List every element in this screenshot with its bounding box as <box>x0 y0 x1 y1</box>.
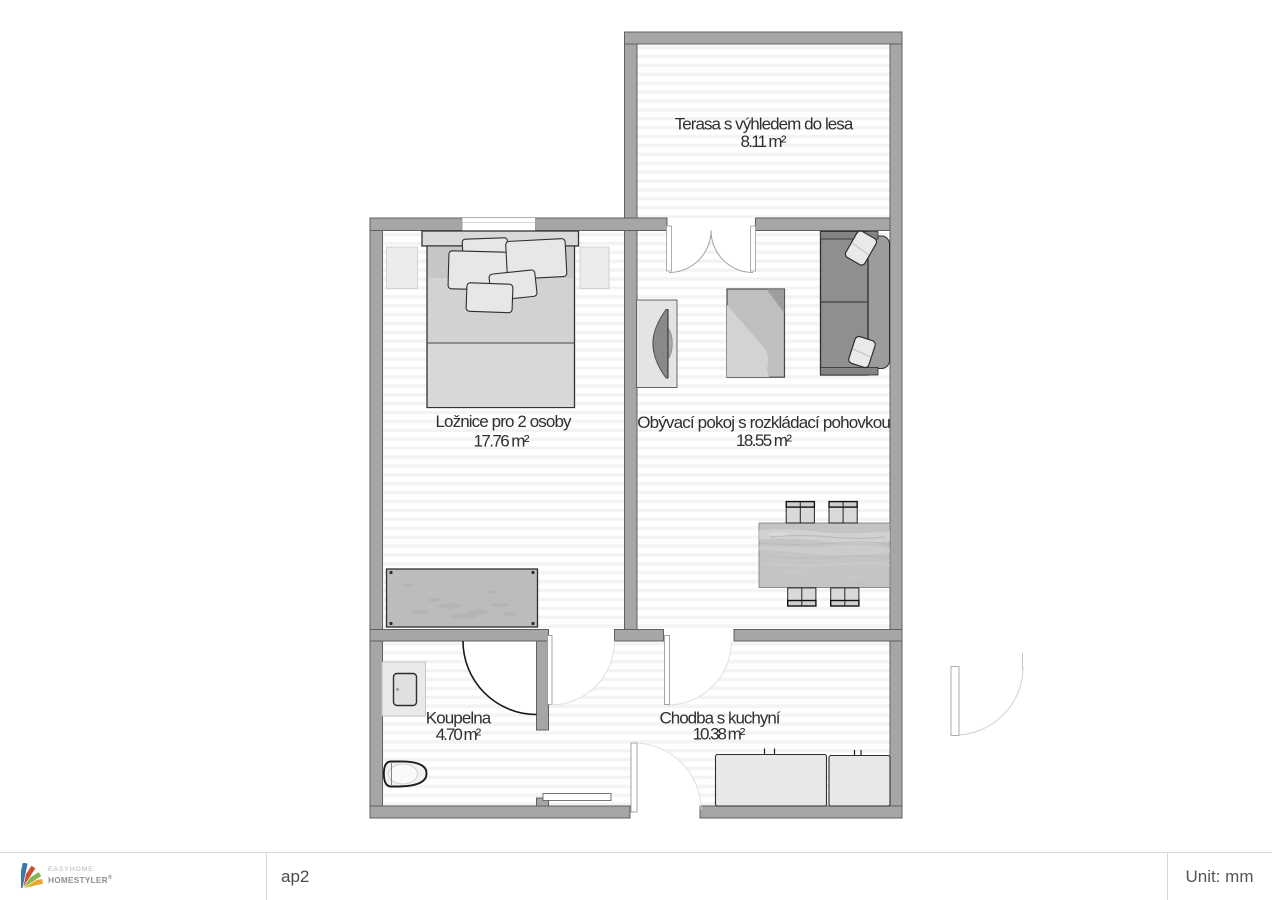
svg-text:Terasa s výhledem do lesa: Terasa s výhledem do lesa <box>675 115 854 134</box>
svg-text:18.55 m²: 18.55 m² <box>736 431 792 450</box>
svg-text:17.76 m²: 17.76 m² <box>474 432 530 451</box>
svg-text:Ložnice pro 2 osoby: Ložnice pro 2 osoby <box>436 412 573 431</box>
svg-text:4.70 m²: 4.70 m² <box>436 725 482 744</box>
svg-text:10.38 m²: 10.38 m² <box>693 725 746 744</box>
svg-text:Obývací pokoj s rozkládací poh: Obývací pokoj s rozkládací pohovkou <box>637 413 891 432</box>
svg-text:8.11 m²: 8.11 m² <box>741 132 787 151</box>
